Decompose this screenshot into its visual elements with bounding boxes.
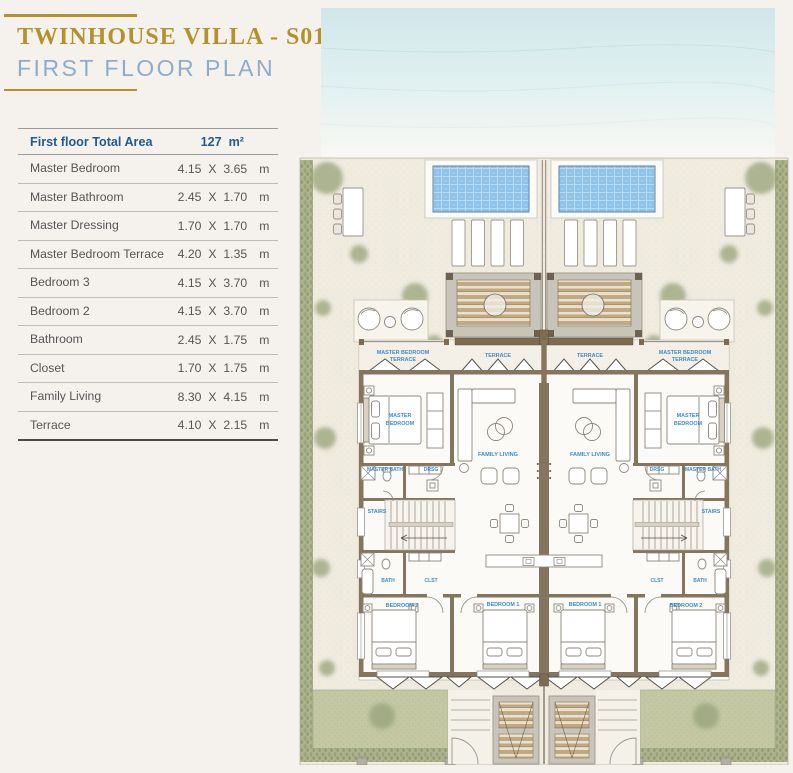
dimension-unit: m xyxy=(253,333,269,347)
area-table-rows: Master Bedroom 4.15 X 3.65 m Master Bath… xyxy=(18,155,278,441)
dimension-height: 3.70 xyxy=(223,276,253,290)
room-name: Bedroom 3 xyxy=(18,275,171,290)
label-master-bath: MASTER BATH xyxy=(685,467,721,473)
dimension-unit: m xyxy=(253,162,269,176)
dimension-height: 1.75 xyxy=(223,361,253,375)
room-dimensions: 4.15 X 3.70 m xyxy=(171,304,278,318)
gold-divider-bottom xyxy=(4,89,137,92)
dimension-unit: m xyxy=(253,247,269,261)
dimension-height: 1.35 xyxy=(223,247,253,261)
table-row: Family Living 8.30 X 4.15 m xyxy=(18,382,278,411)
label-master-bedroom-terrace: MASTER BEDROOM xyxy=(659,350,712,356)
area-table-header: First floor Total Area 127 m² xyxy=(18,128,278,155)
dimension-width: 4.15 xyxy=(171,276,201,290)
dimension-width: 1.70 xyxy=(171,361,201,375)
dimension-width: 1.70 xyxy=(171,219,201,233)
label-master-bedroom: MASTER xyxy=(389,413,412,419)
dimension-separator: X xyxy=(201,219,223,233)
dimension-separator: X xyxy=(201,162,223,176)
room-name: Bathroom xyxy=(18,332,171,347)
label-bedroom-2: BEDROOM 2 xyxy=(386,603,419,609)
label-stairs: STAIRS xyxy=(368,509,387,515)
room-name: Master Bedroom Terrace xyxy=(18,247,171,262)
dimension-separator: X xyxy=(201,190,223,204)
dimension-unit: m xyxy=(253,390,269,404)
label-master-bedroom-2: BEDROOM xyxy=(386,421,415,427)
dimension-width: 2.45 xyxy=(171,190,201,204)
label-bedroom-1: BEDROOM 1 xyxy=(487,602,520,608)
floor-plan: MASTER BEDROOM TERRACE TERRACE MASTER BE… xyxy=(297,8,791,765)
room-dimensions: 2.45 X 1.70 m xyxy=(171,190,278,204)
label-bath: BATH xyxy=(381,578,395,584)
room-name: Master Bedroom xyxy=(18,161,171,176)
label-terrace: TERRACE xyxy=(485,353,511,359)
room-name: Bedroom 2 xyxy=(18,304,171,319)
dimension-height: 1.70 xyxy=(223,190,253,204)
label-dressing: DRSG xyxy=(424,467,439,473)
dimension-unit: m xyxy=(253,276,269,290)
dimension-separator: X xyxy=(201,390,223,404)
table-row: Bedroom 2 4.15 X 3.70 m xyxy=(18,297,278,326)
dimension-height: 1.70 xyxy=(223,219,253,233)
dimension-separator: X xyxy=(201,276,223,290)
dimension-height: 1.75 xyxy=(223,333,253,347)
dimension-separator: X xyxy=(201,361,223,375)
total-area-value: 127 xyxy=(201,135,222,149)
page-title: TWINHOUSE VILLA - S01 xyxy=(17,24,326,51)
dimension-width: 4.10 xyxy=(171,418,201,432)
total-area-label: First floor Total Area xyxy=(18,135,152,149)
info-panel: TWINHOUSE VILLA - S01 FIRST FLOOR PLAN F… xyxy=(0,0,296,773)
dimension-unit: m xyxy=(253,361,269,375)
label-terrace: TERRACE xyxy=(577,353,603,359)
label-master-bedroom-terrace: MASTER BEDROOM xyxy=(377,350,430,356)
label-master-bedroom: MASTER xyxy=(677,413,700,419)
room-name: Family Living xyxy=(18,389,171,404)
total-area-value-group: 127 m² xyxy=(201,135,244,149)
label-master-bedroom-2: BEDROOM xyxy=(674,421,703,427)
label-family-living: FAMILY LIVING xyxy=(478,452,518,458)
room-dimensions: 4.10 X 2.15 m xyxy=(171,418,278,432)
label-dressing: DRSG xyxy=(650,467,665,473)
sea xyxy=(321,8,775,160)
table-row: Terrace 4.10 X 2.15 m xyxy=(18,411,278,442)
dimension-unit: m xyxy=(253,418,269,432)
dimension-separator: X xyxy=(201,333,223,347)
room-dimensions: 1.70 X 1.75 m xyxy=(171,361,278,375)
page: { "page": { "background": "#f5f2ee" }, "… xyxy=(0,0,793,773)
dimension-unit: m xyxy=(253,190,269,204)
dimension-width: 4.15 xyxy=(171,304,201,318)
label-bedroom-2: BEDROOM 2 xyxy=(670,603,703,609)
room-dimensions: 1.70 X 1.70 m xyxy=(171,219,278,233)
label-bath: BATH xyxy=(693,578,707,584)
dimension-separator: X xyxy=(201,418,223,432)
room-name: Closet xyxy=(18,361,171,376)
room-name: Master Bathroom xyxy=(18,190,171,205)
table-row: Bathroom 2.45 X 1.75 m xyxy=(18,325,278,354)
table-row: Master Bathroom 2.45 X 1.70 m xyxy=(18,183,278,212)
label-stairs: STAIRS xyxy=(702,509,721,515)
dimension-unit: m xyxy=(253,304,269,318)
room-dimensions: 4.15 X 3.65 m xyxy=(171,162,278,176)
dimension-unit: m xyxy=(253,219,269,233)
room-dimensions: 4.20 X 1.35 m xyxy=(171,247,278,261)
label-master-bedroom-terrace-2: TERRACE xyxy=(390,357,416,363)
page-subtitle: FIRST FLOOR PLAN xyxy=(17,55,326,82)
dimension-width: 4.15 xyxy=(171,162,201,176)
table-row: Master Bedroom Terrace 4.20 X 1.35 m xyxy=(18,240,278,269)
gold-divider-top xyxy=(4,14,137,17)
label-family-living: FAMILY LIVING xyxy=(570,452,610,458)
room-name: Master Dressing xyxy=(18,218,171,233)
room-dimensions: 8.30 X 4.15 m xyxy=(171,390,278,404)
room-dimensions: 2.45 X 1.75 m xyxy=(171,333,278,347)
dimension-separator: X xyxy=(201,304,223,318)
dimension-width: 4.20 xyxy=(171,247,201,261)
label-master-bedroom-terrace-2: TERRACE xyxy=(672,357,698,363)
label-closet: CLST xyxy=(424,578,437,584)
table-row: Master Dressing 1.70 X 1.70 m xyxy=(18,211,278,240)
dimension-height: 3.65 xyxy=(223,162,253,176)
label-closet: CLST xyxy=(650,578,663,584)
dimension-height: 2.15 xyxy=(223,418,253,432)
area-table: First floor Total Area 127 m² Master Bed… xyxy=(18,128,278,441)
label-bedroom-1: BEDROOM 1 xyxy=(569,602,602,608)
dimension-width: 2.45 xyxy=(171,333,201,347)
dimension-height: 4.15 xyxy=(223,390,253,404)
dimension-separator: X xyxy=(201,247,223,261)
title-block: TWINHOUSE VILLA - S01 FIRST FLOOR PLAN xyxy=(4,14,326,91)
dimension-height: 3.70 xyxy=(223,304,253,318)
room-dimensions: 4.15 X 3.70 m xyxy=(171,276,278,290)
total-area-unit: m² xyxy=(229,135,244,149)
label-master-bath: MASTER BATH xyxy=(367,467,403,473)
table-row: Bedroom 3 4.15 X 3.70 m xyxy=(18,268,278,297)
floor-plan-drawing: MASTER BEDROOM TERRACE TERRACE MASTER BE… xyxy=(297,8,791,765)
table-row: Master Bedroom 4.15 X 3.65 m xyxy=(18,155,278,183)
room-name: Terrace xyxy=(18,418,171,433)
table-row: Closet 1.70 X 1.75 m xyxy=(18,354,278,383)
dimension-width: 8.30 xyxy=(171,390,201,404)
